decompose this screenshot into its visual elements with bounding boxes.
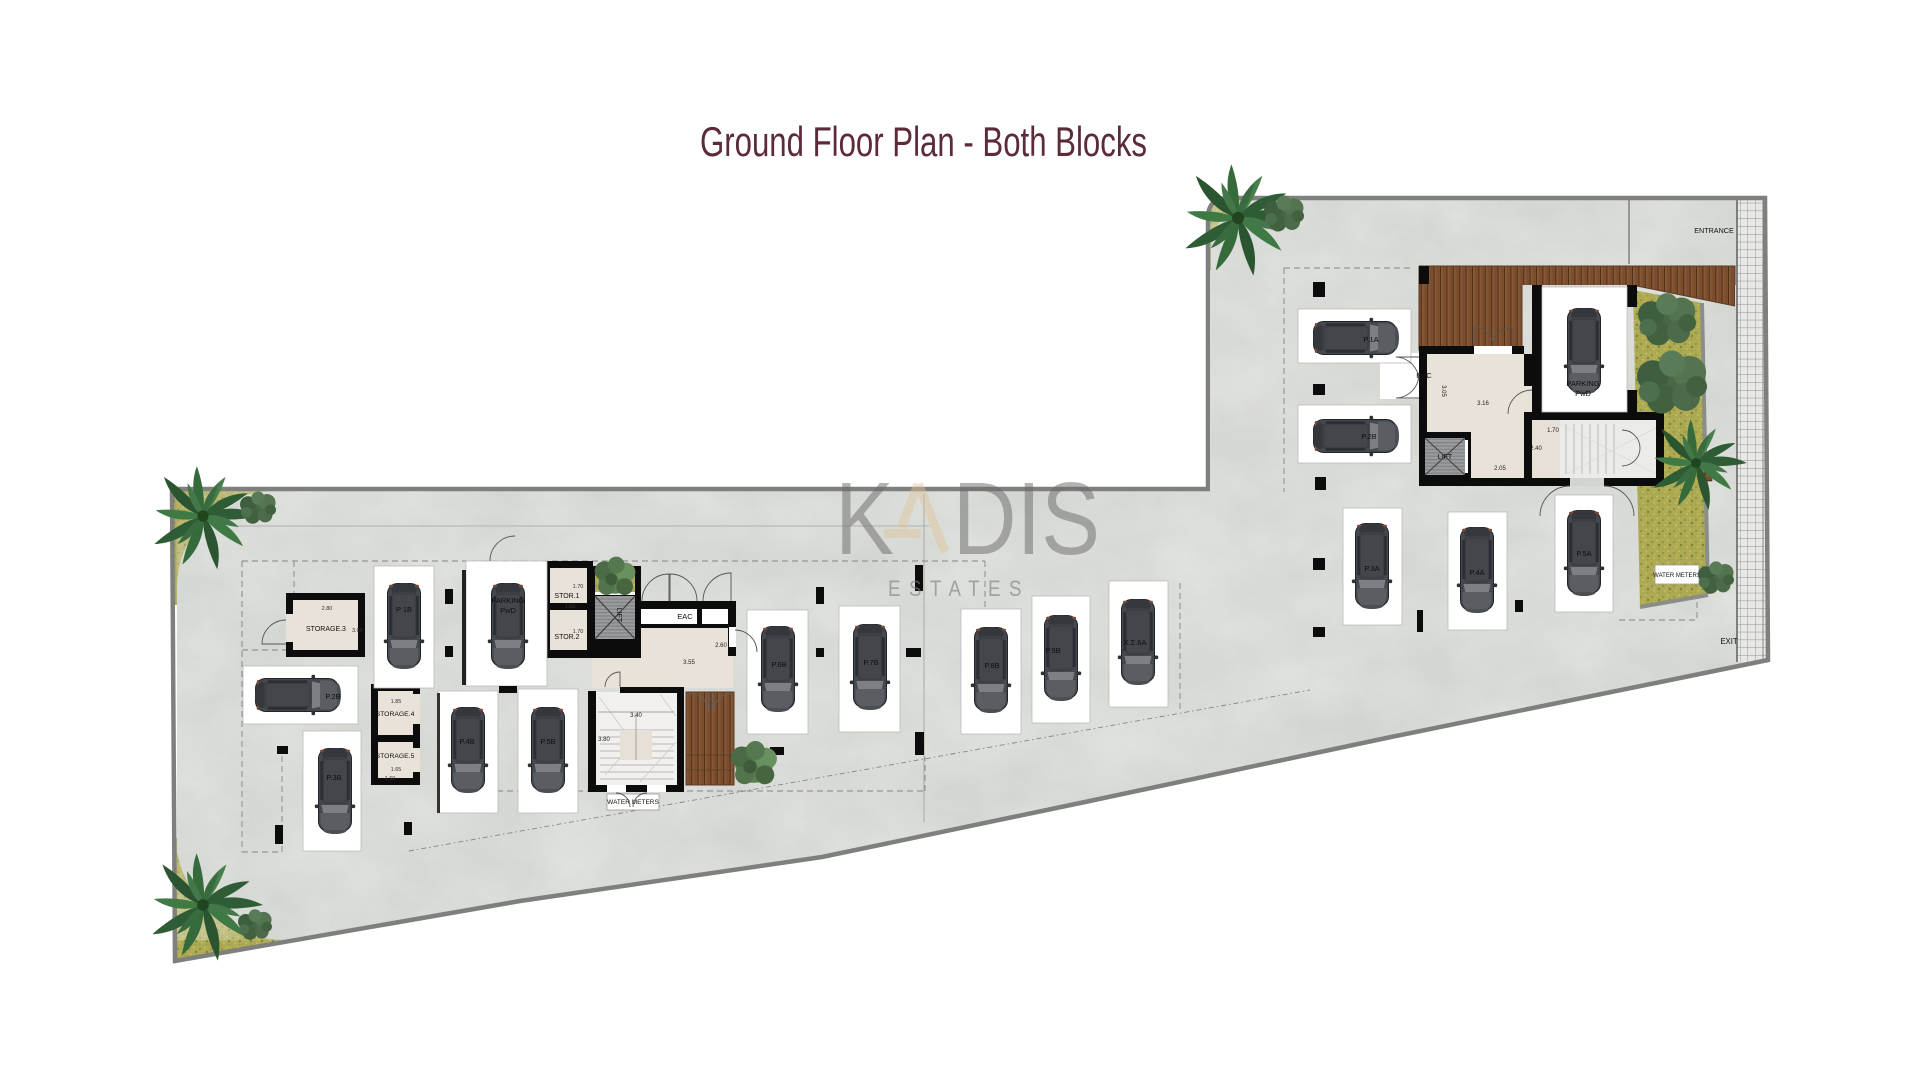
svg-text:P.3B: P.3B xyxy=(326,773,341,782)
svg-text:PwD: PwD xyxy=(1575,389,1591,398)
svg-text:3.80: 3.80 xyxy=(598,737,610,743)
svg-text:X.Σ.6A: X.Σ.6A xyxy=(1124,638,1147,647)
svg-text:P.1A: P.1A xyxy=(1363,335,1378,344)
svg-text:EXIT: EXIT xyxy=(1720,637,1738,646)
svg-text:P.3A: P.3A xyxy=(1364,564,1379,573)
svg-text:1.70: 1.70 xyxy=(573,629,584,635)
svg-text:P.4A: P.4A xyxy=(1469,568,1484,577)
svg-text:3.16: 3.16 xyxy=(1477,401,1489,407)
svg-text:PwD: PwD xyxy=(500,606,516,615)
svg-text:LIFT: LIFT xyxy=(1438,454,1453,461)
svg-text:3.05: 3.05 xyxy=(1440,385,1446,397)
svg-text:Ground Floor Plan - Both Block: Ground Floor Plan - Both Blocks xyxy=(700,118,1147,165)
svg-text:2.05: 2.05 xyxy=(1494,466,1506,472)
svg-text:P 1B: P 1B xyxy=(396,605,412,614)
svg-text:P.2B: P.2B xyxy=(325,692,340,701)
svg-text:1.60: 1.60 xyxy=(565,604,576,610)
svg-text:1.65: 1.65 xyxy=(391,767,402,773)
svg-text:WATER METERS: WATER METERS xyxy=(1653,573,1701,579)
svg-text:1.85: 1.85 xyxy=(391,699,402,705)
svg-text:2.80: 2.80 xyxy=(322,606,333,612)
svg-text:PARKING: PARKING xyxy=(491,596,524,605)
svg-text:KADIS: KADIS xyxy=(835,461,1100,576)
svg-text:ESTATES: ESTATES xyxy=(888,576,1030,601)
svg-text:STORAGE.3: STORAGE.3 xyxy=(306,626,346,633)
svg-text:3.05: 3.05 xyxy=(352,628,363,634)
svg-text:P.5B: P.5B xyxy=(540,737,555,746)
svg-text:P.6B: P.6B xyxy=(771,660,786,669)
svg-text:P.2B: P.2B xyxy=(1361,432,1376,441)
svg-text:2.60: 2.60 xyxy=(715,643,727,649)
svg-text:STOR.1: STOR.1 xyxy=(554,593,579,600)
svg-text:STORAGE.5: STORAGE.5 xyxy=(376,753,415,760)
svg-text:STORAGE.4: STORAGE.4 xyxy=(376,711,415,718)
svg-text:2.40: 2.40 xyxy=(1530,446,1542,452)
svg-text:1.70: 1.70 xyxy=(1547,428,1559,434)
svg-text:P.7B: P.7B xyxy=(863,658,878,667)
svg-text:P.9B: P.9B xyxy=(1045,646,1060,655)
svg-text:P.5A: P.5A xyxy=(1576,549,1591,558)
svg-text:1.60: 1.60 xyxy=(385,776,396,782)
svg-text:LIFT: LIFT xyxy=(615,608,622,623)
svg-text:1.70: 1.70 xyxy=(573,584,584,590)
svg-text:3.55: 3.55 xyxy=(683,660,695,666)
svg-text:P.8B: P.8B xyxy=(984,661,999,670)
svg-text:PARKING: PARKING xyxy=(1566,379,1599,388)
svg-text:STOR.2: STOR.2 xyxy=(554,634,579,641)
svg-text:EAC: EAC xyxy=(677,612,693,621)
svg-text:ENTRANCE: ENTRANCE xyxy=(1694,226,1734,235)
svg-text:P.4B: P.4B xyxy=(459,737,474,746)
svg-text:3.40: 3.40 xyxy=(630,713,642,719)
